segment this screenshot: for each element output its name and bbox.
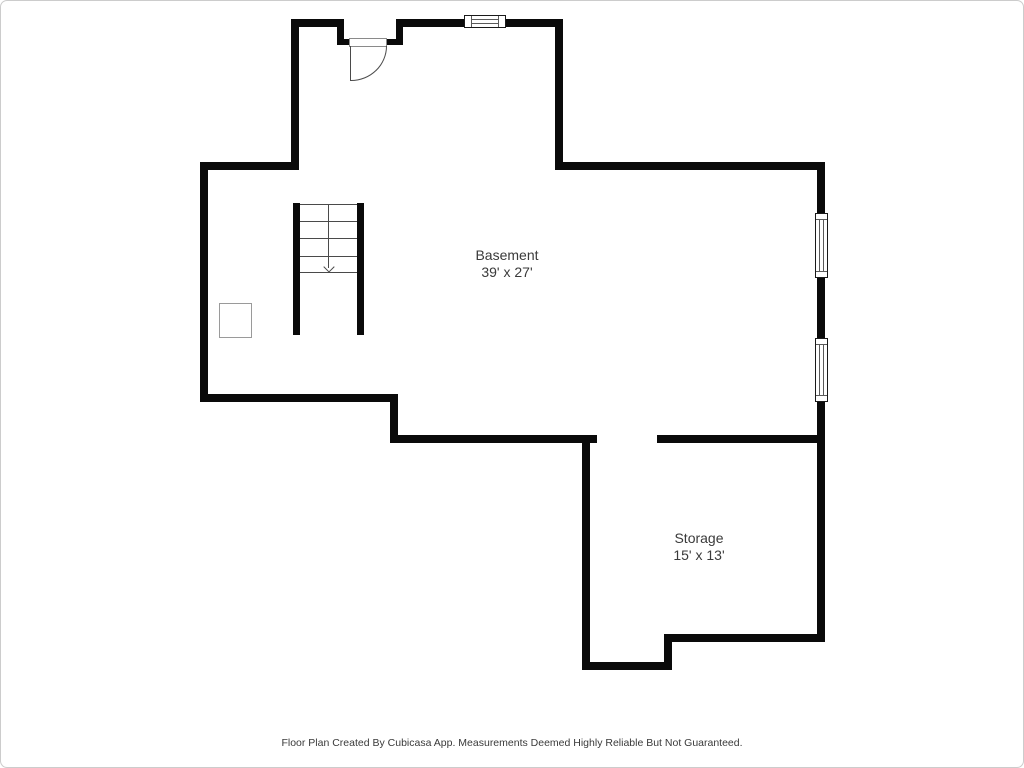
- floor-plan: Basement 39' x 27' Storage 15' x 13': [0, 0, 1024, 768]
- down-arrow-icon: [323, 261, 334, 272]
- room-label-storage: Storage 15' x 13': [609, 530, 789, 564]
- room-label-basement: Basement 39' x 27': [417, 247, 597, 281]
- window-mullion: [816, 344, 827, 345]
- room-name: Basement: [417, 247, 597, 264]
- stair-stringer-right: [357, 203, 364, 335]
- room-dimensions: 15' x 13': [609, 547, 789, 564]
- window-mullion: [816, 271, 827, 272]
- wall-west-upper-horizontal: [200, 162, 299, 170]
- wall-storage-bottom: [582, 662, 672, 670]
- wall-upper-left-vertical: [291, 19, 299, 170]
- wall-storage-divider: [657, 435, 825, 443]
- wall-west: [200, 162, 208, 402]
- door-swing-arc-icon: [351, 46, 387, 81]
- wall-northeast-horizontal: [555, 162, 825, 170]
- window-pane-line: [472, 19, 498, 20]
- window-mullion: [816, 395, 827, 396]
- footer-disclaimer: Floor Plan Created By Cubicasa App. Meas…: [0, 737, 1024, 749]
- window-mullion: [471, 16, 472, 27]
- window-mullion: [498, 16, 499, 27]
- wall-south-mid: [390, 435, 597, 443]
- wall-storage-west: [582, 435, 590, 670]
- floor-plan-page: Basement 39' x 27' Storage 15' x 13' Flo…: [0, 0, 1024, 768]
- window-pane-line: [819, 220, 820, 271]
- room-name: Storage: [609, 530, 789, 547]
- window-pane-line: [472, 23, 498, 24]
- stair-stringer-left: [293, 203, 300, 335]
- window-pane-line: [819, 345, 820, 395]
- wall-storage-south: [664, 634, 825, 642]
- window-mullion: [816, 219, 827, 220]
- stair-direction-line: [328, 204, 329, 268]
- wall-upper-right-vertical: [555, 19, 563, 170]
- wall-north: [291, 19, 563, 27]
- room-dimensions: 39' x 27': [417, 264, 597, 281]
- window-frame: [815, 213, 828, 278]
- support-post-symbol: [219, 303, 252, 338]
- wall-south-left: [200, 394, 398, 402]
- window-pane-line: [823, 220, 824, 271]
- window-frame: [815, 338, 828, 402]
- window-pane-line: [823, 345, 824, 395]
